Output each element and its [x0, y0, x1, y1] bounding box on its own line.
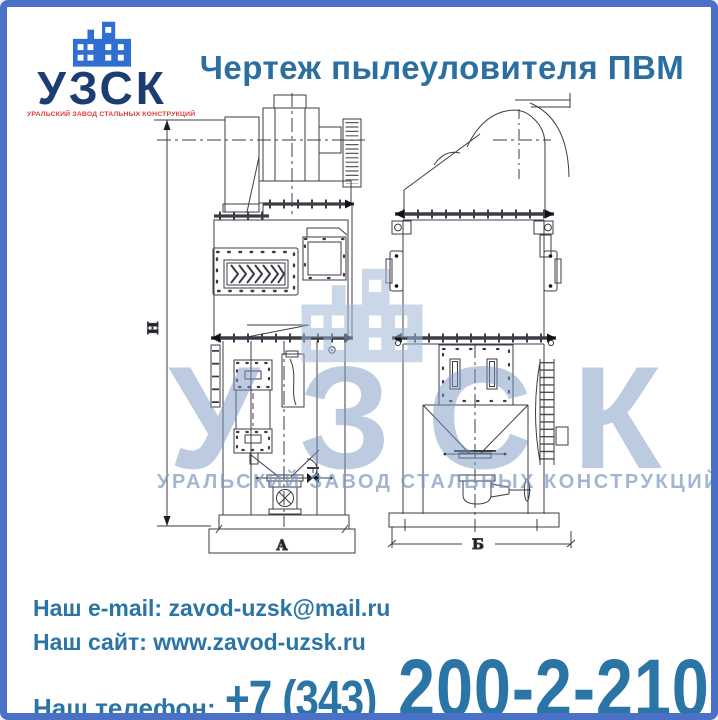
fan-volute — [404, 93, 570, 214]
email-label: Наш e-mail: — [33, 595, 162, 621]
phone-label: Наш телефон: — [33, 693, 216, 720]
flange-upper-front — [214, 200, 354, 221]
phone-number: 200-2-210 — [398, 648, 710, 720]
contact-phone: Наш телефон: +7 (343) 200-2-210 — [33, 655, 718, 720]
dim-label-height: Н — [146, 321, 162, 334]
page-frame: УЗСК УРАЛЬСКИЙ ЗАВОД СТАЛЬНЫХ КОНСТРУКЦИ… — [0, 0, 718, 720]
contact-site: Наш сайт: www.zavod-uzsk.ru — [33, 629, 366, 656]
watermark-name: УЗСК — [155, 345, 715, 491]
site-value: www.zavod-uzsk.ru — [153, 629, 366, 655]
site-label: Наш сайт: — [33, 629, 147, 655]
dim-label-width-side: Б — [472, 537, 484, 553]
dim-label-width-front: А — [276, 538, 288, 554]
phone-area-code: +7 (343) — [225, 669, 376, 720]
contact-email: Наш e-mail: zavod-uzsk@mail.ru — [33, 595, 390, 622]
louver-panel — [213, 248, 298, 295]
base-front: А — [209, 515, 355, 554]
base-side: Б — [388, 513, 575, 553]
watermark-tagline: УРАЛЬСКИЙ ЗАВОД СТАЛЬНЫХ КОНСТРУКЦИЙ — [157, 471, 717, 494]
flange-upper-side — [392, 210, 554, 258]
fan-assembly — [157, 93, 365, 215]
email-value: zavod-uzsk@mail.ru — [169, 595, 391, 621]
